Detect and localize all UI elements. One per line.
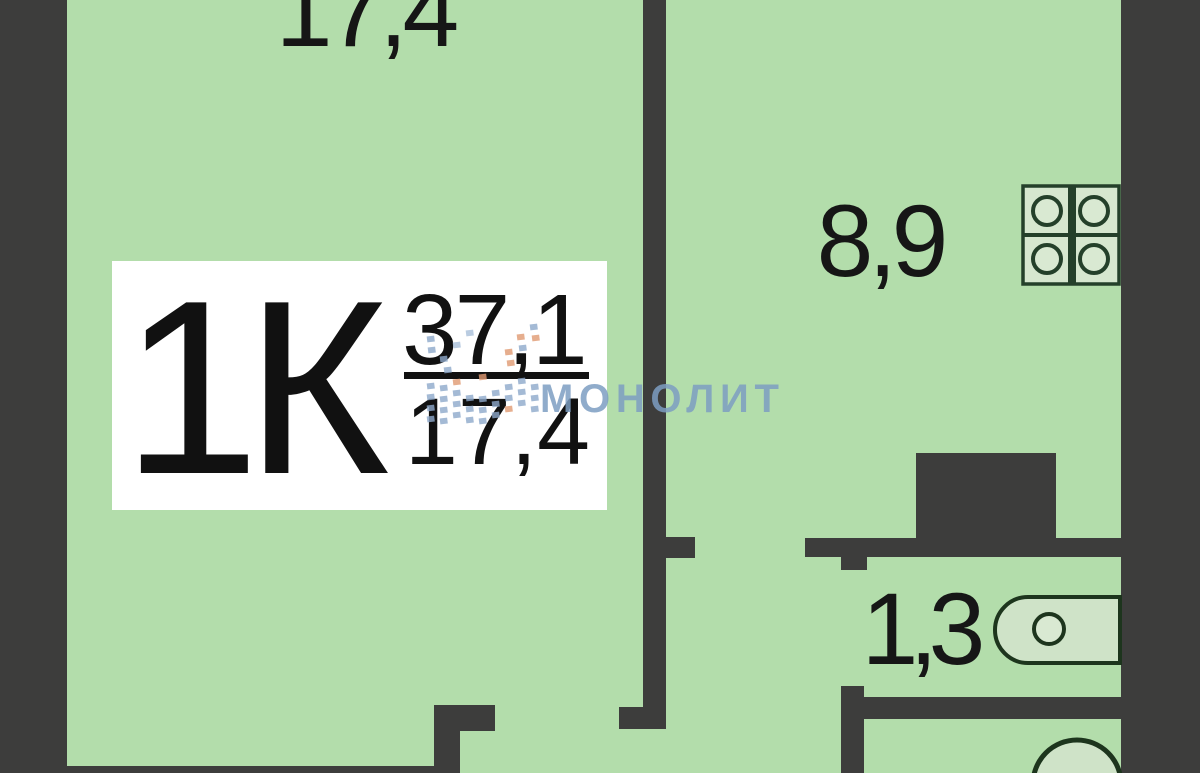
svg-text:МОНОЛИТ: МОНОЛИТ	[540, 377, 785, 421]
svg-text:1К: 1К	[122, 248, 389, 526]
svg-text:8,9: 8,9	[817, 184, 944, 298]
svg-text:1,3: 1,3	[862, 572, 982, 686]
svg-text:17,4: 17,4	[276, 0, 457, 68]
svg-text:37,1: 37,1	[402, 274, 585, 386]
